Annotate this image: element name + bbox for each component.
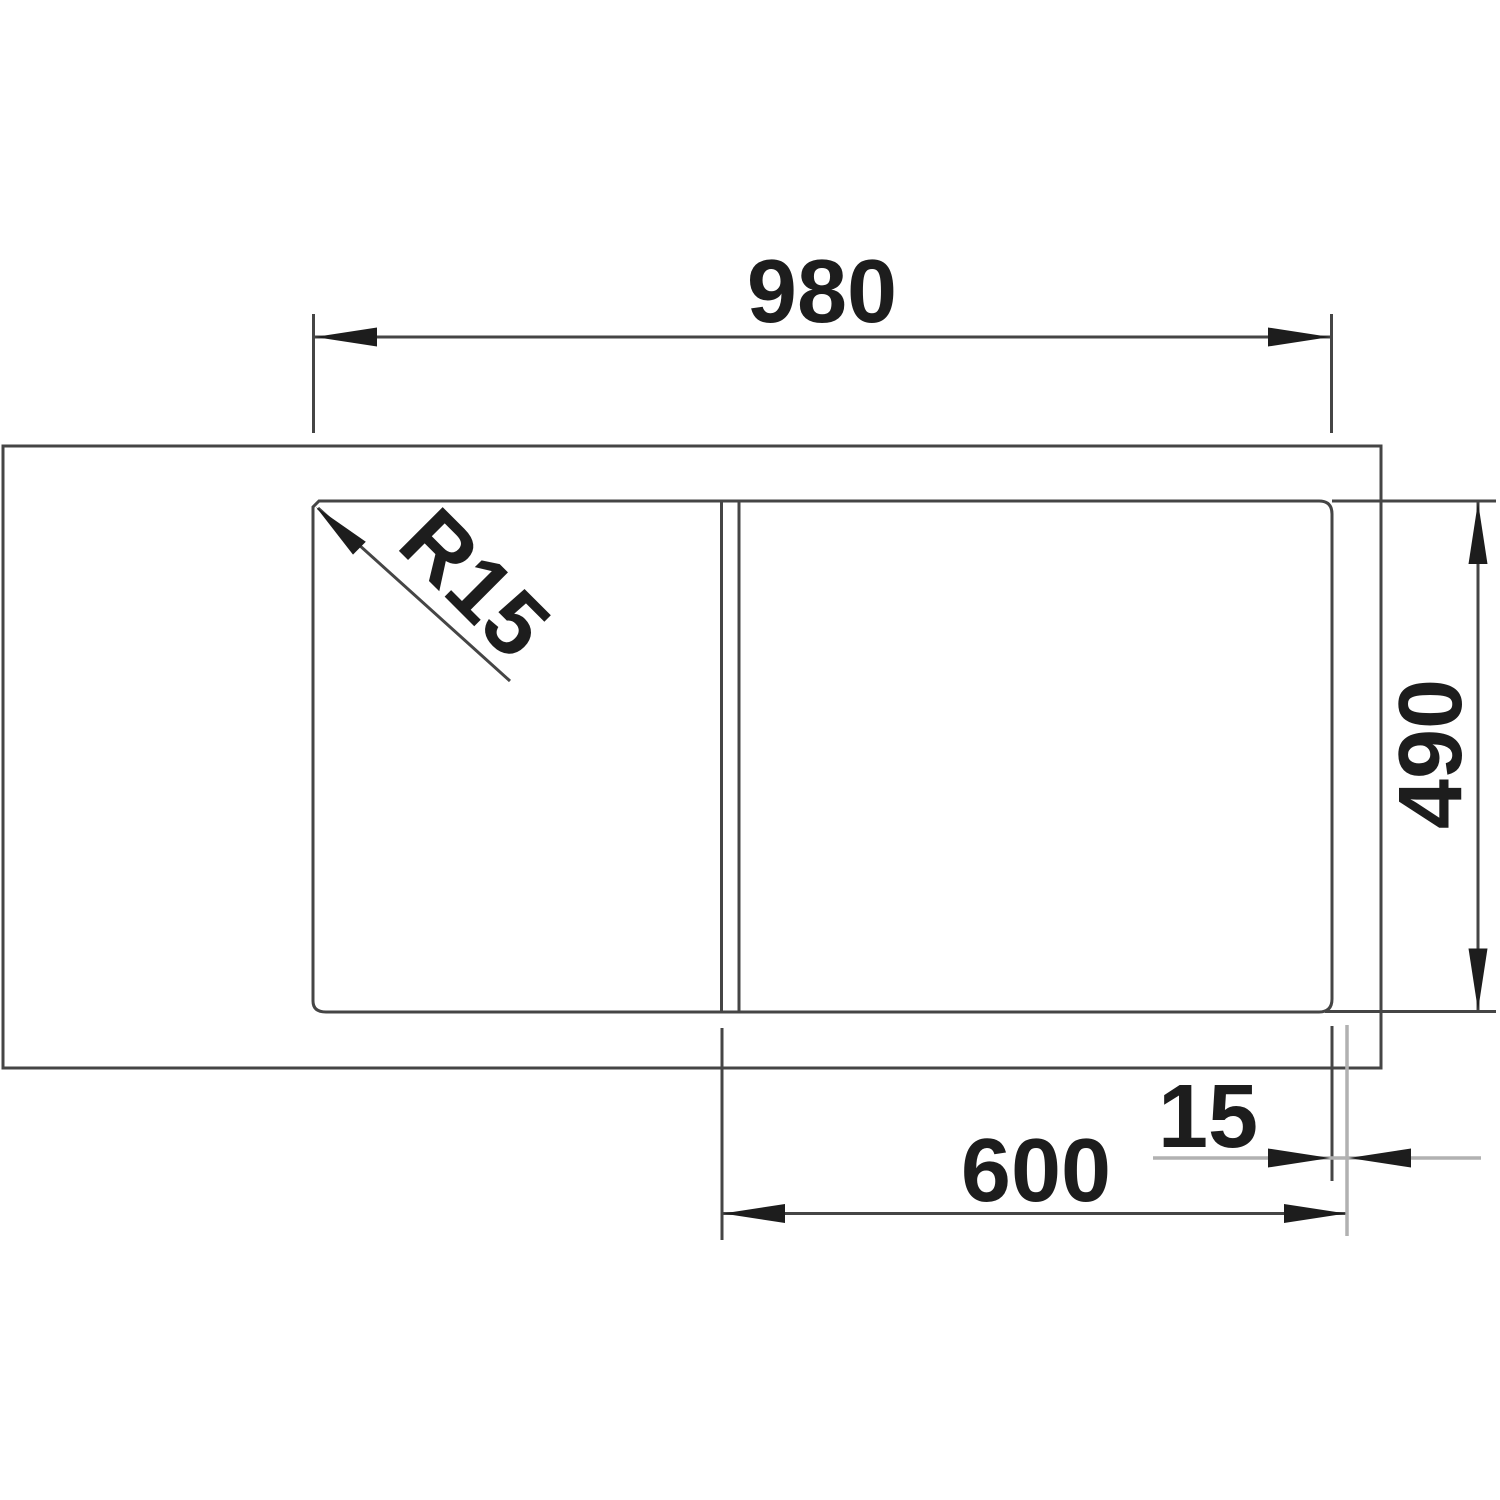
svg-text:600: 600	[961, 1121, 1111, 1221]
svg-text:R15: R15	[380, 490, 567, 677]
svg-text:15: 15	[1158, 1067, 1258, 1167]
svg-text:980: 980	[747, 242, 897, 342]
svg-text:490: 490	[1381, 679, 1481, 829]
